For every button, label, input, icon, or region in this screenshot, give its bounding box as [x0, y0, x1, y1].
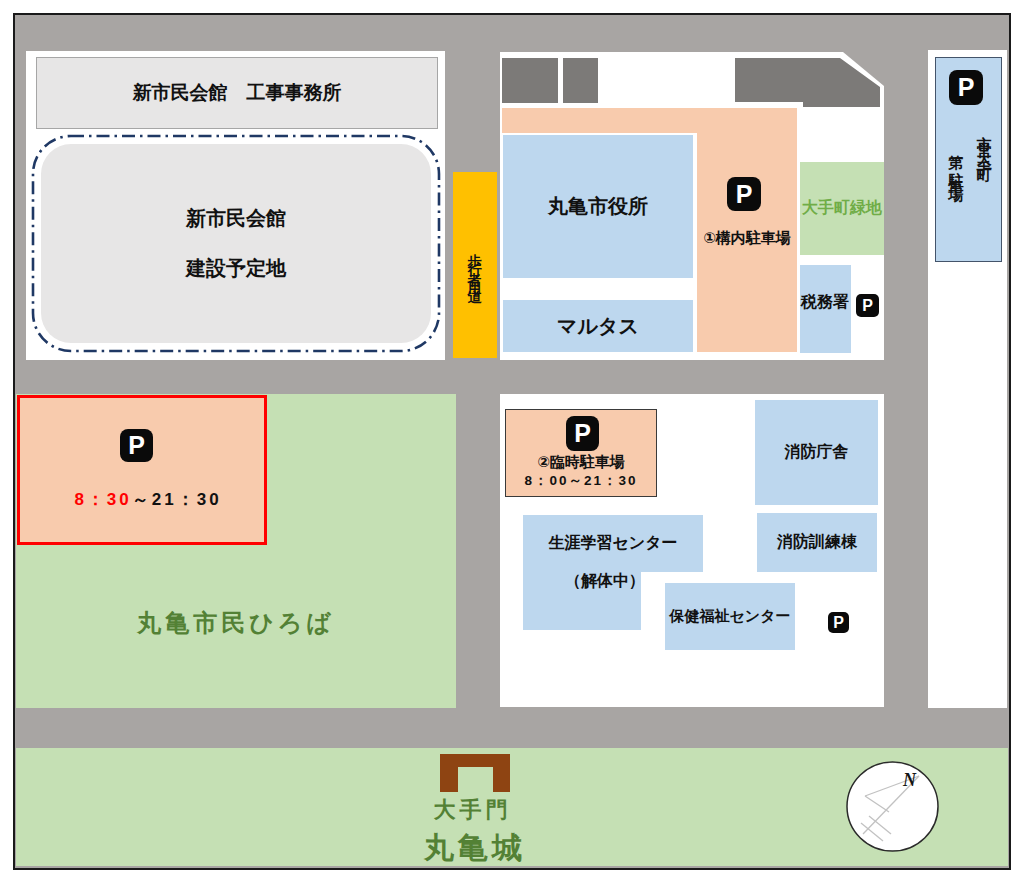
construction-office: 新市民会館 工事事務所 — [36, 57, 438, 129]
compass-circle — [847, 762, 938, 851]
pedestrian-path-label: 歩行者用道 — [466, 243, 484, 288]
parking-icon-tax-office: P — [856, 294, 879, 317]
tax-office-label: 税務署 — [794, 293, 856, 311]
parking-icon-lot2: P — [566, 416, 599, 451]
compass: N — [845, 760, 940, 853]
marutas: マルタス — [503, 300, 693, 352]
municipal-lot-label-right: 市営大手町 — [974, 123, 993, 163]
parking-icon-lot1: P — [727, 177, 761, 211]
highlighted-parking-area — [17, 395, 267, 545]
municipal-lot-label-left: 第一駐車場 — [946, 143, 965, 183]
parking-map-page: 新市民会館 工事事務所 新市民会館 建設予定地 歩行者用道 P ①構内駐車場 丸… — [0, 0, 1024, 881]
plaza-lot-hours: 8：30～21：30 — [28, 489, 268, 509]
demolition-label: （解体中） — [523, 572, 687, 590]
parking-icon-health-center: P — [828, 612, 849, 633]
citizens-plaza-label: 丸亀市民ひろば — [16, 608, 456, 638]
fire-department-hq: 消防庁舎 — [755, 400, 878, 505]
compass-north-label: N — [902, 770, 917, 790]
castle-label: 丸亀城 — [370, 832, 580, 864]
plaza-lot-hours-open: 8：30 — [74, 488, 131, 511]
lifelong-learning-center: 生涯学習センター — [523, 515, 703, 572]
construction-office-label: 新市民会館 工事事務所 — [133, 80, 342, 106]
pedestrian-path: 歩行者用道 — [453, 172, 497, 358]
lot1-label: ①構内駐車場 — [686, 229, 808, 247]
ote-gate-icon — [440, 754, 510, 792]
otemachi-green-space: 大手町緑地 — [800, 162, 884, 255]
parking-icon-municipal-lot: P — [949, 70, 983, 105]
ote-gate-label: 大手門 — [390, 798, 555, 822]
parking-icon-plaza-lot: P — [120, 429, 153, 462]
lot2-hours: 8：00～21：30 — [507, 473, 655, 488]
planned-site-line1: 新市民会館 — [186, 205, 286, 232]
planned-site-line2: 建設予定地 — [186, 255, 286, 282]
building-block-2 — [563, 58, 598, 103]
fire-training-building: 消防訓練棟 — [757, 513, 877, 572]
building-block-1 — [502, 58, 558, 103]
plaza-lot-hours-close: ～21：30 — [132, 488, 222, 511]
planned-site-labels: 新市民会館 建設予定地 — [30, 133, 442, 354]
lot2-label: ②臨時駐車場 — [507, 454, 655, 470]
map-canvas: 新市民会館 工事事務所 新市民会館 建設予定地 歩行者用道 P ①構内駐車場 丸… — [13, 13, 1011, 870]
city-hall: 丸亀市役所 — [503, 135, 693, 278]
health-welfare-center: 保健福祉センター — [665, 583, 795, 650]
